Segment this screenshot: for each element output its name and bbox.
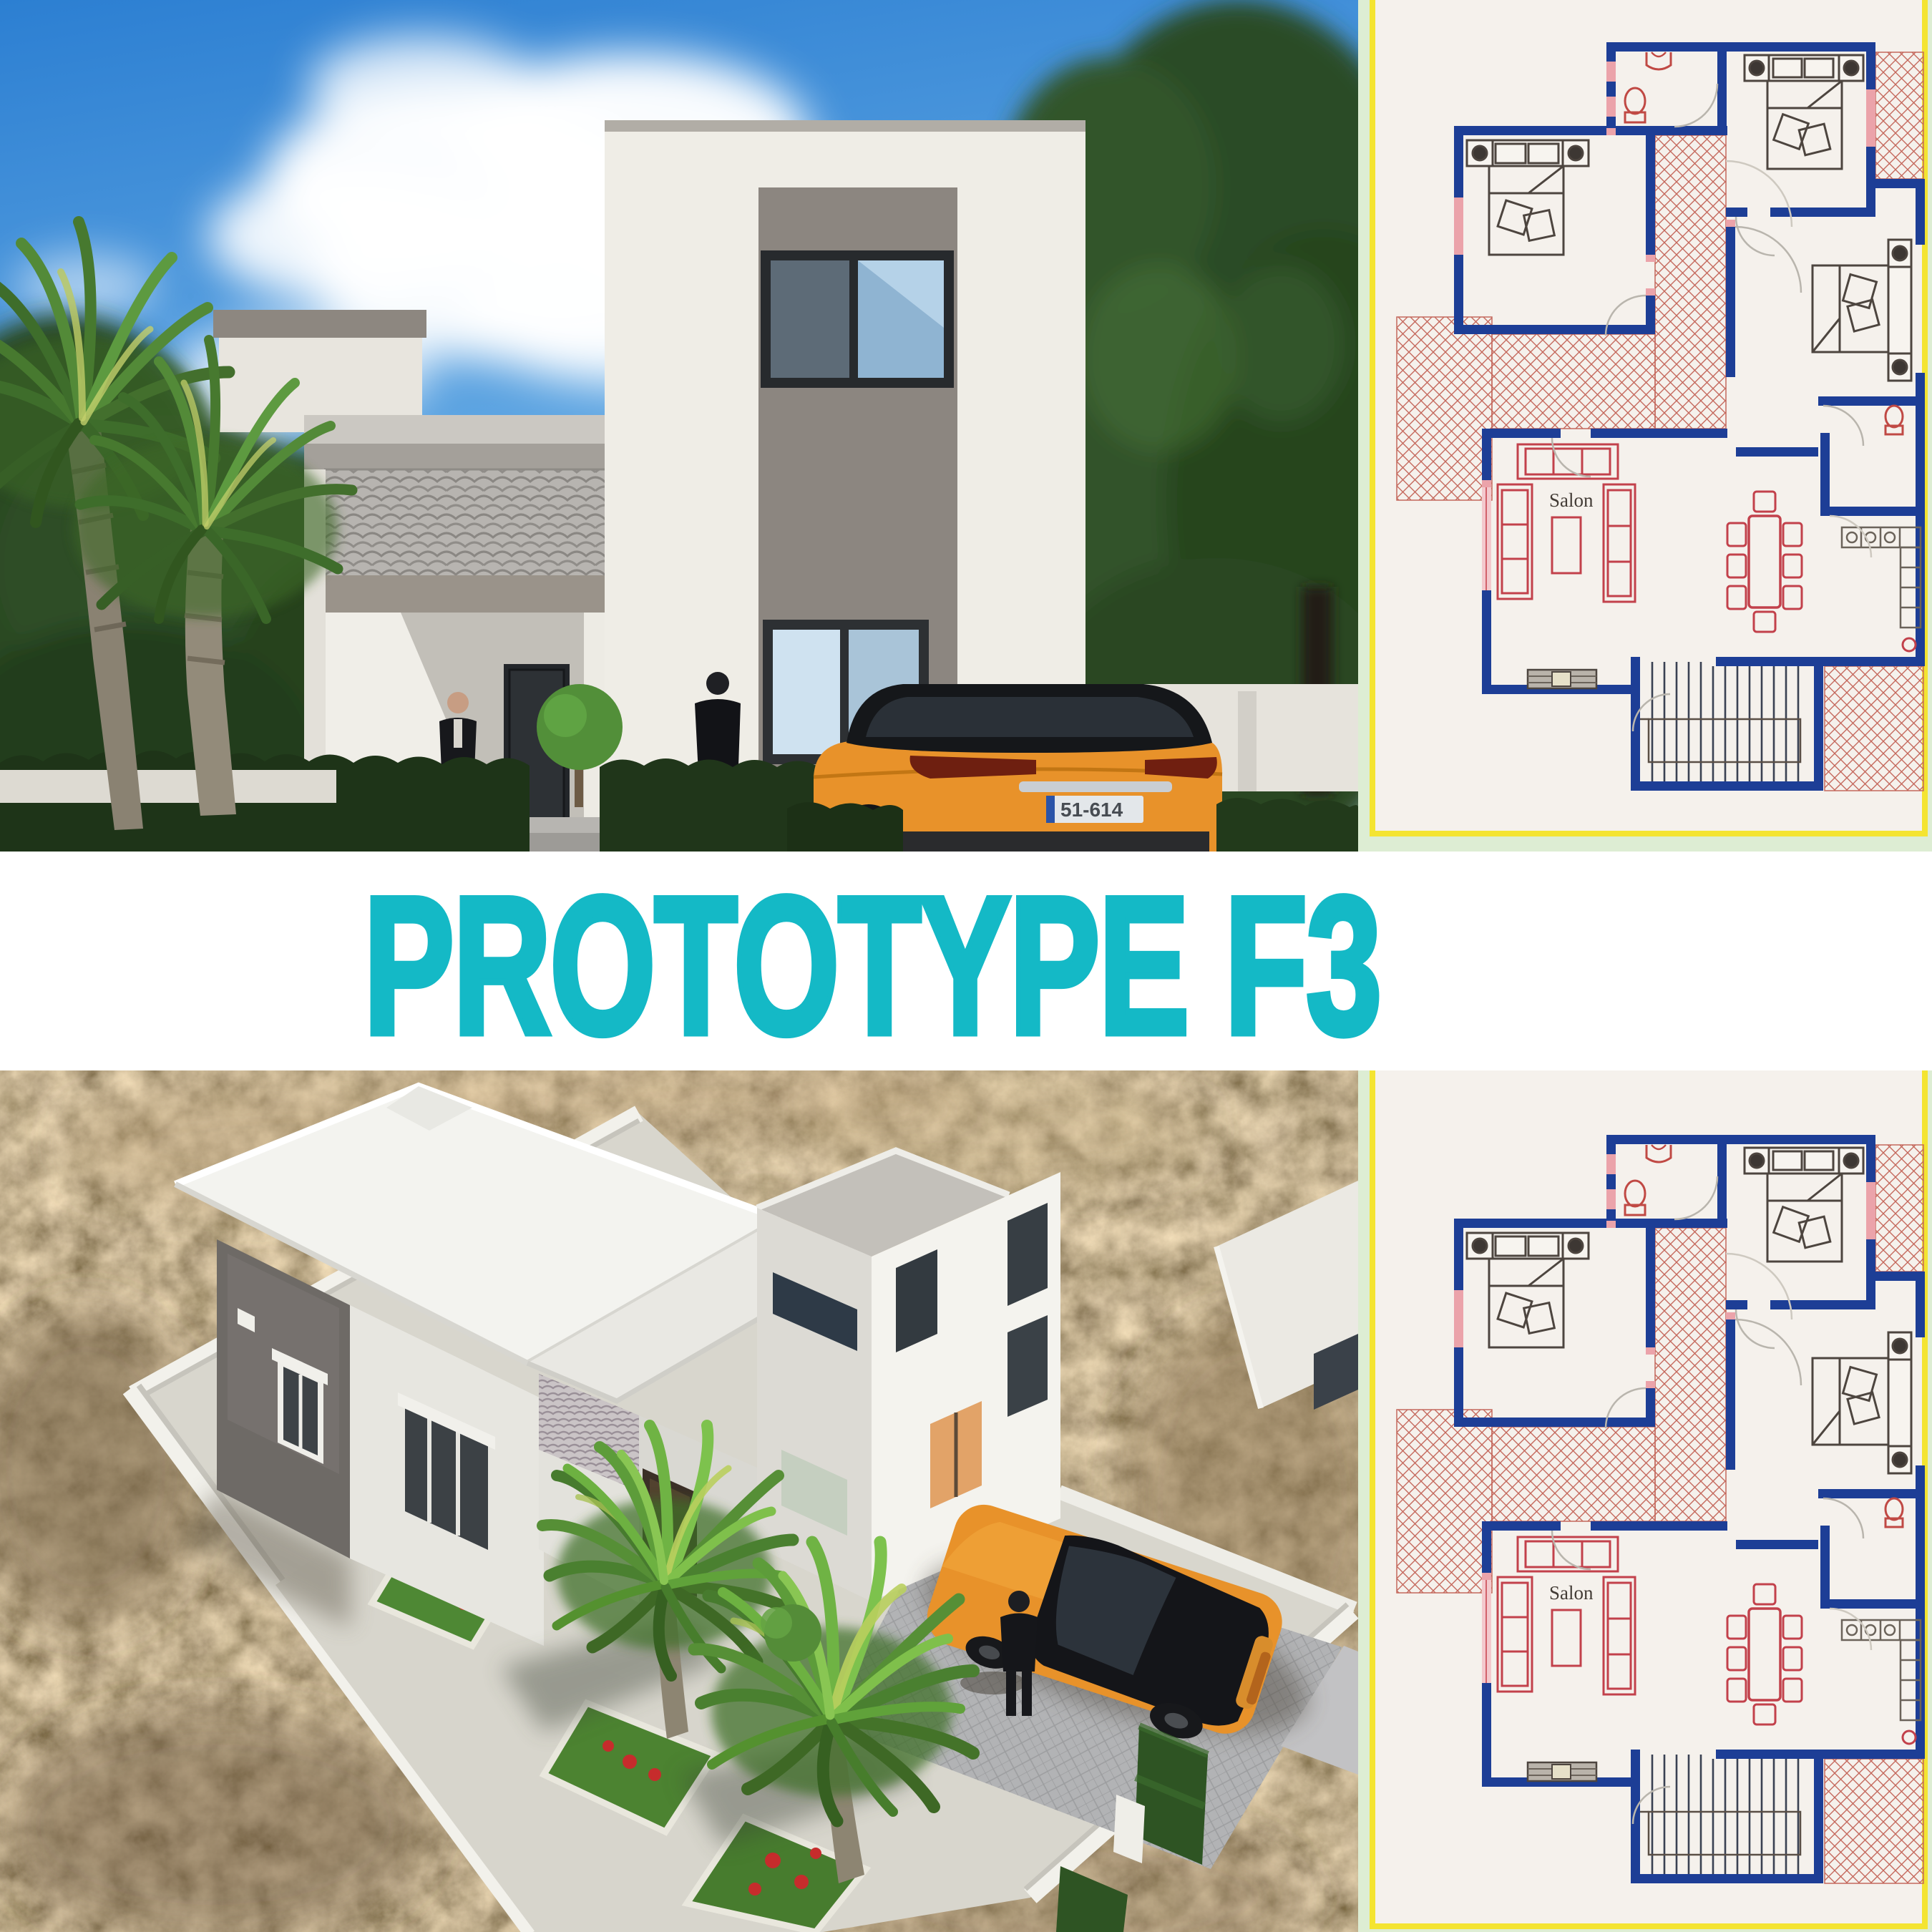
svg-text:PROTOTYPE F3: PROTOTYPE F3	[364, 855, 1380, 1075]
svg-text:51-614: 51-614	[1060, 799, 1123, 821]
